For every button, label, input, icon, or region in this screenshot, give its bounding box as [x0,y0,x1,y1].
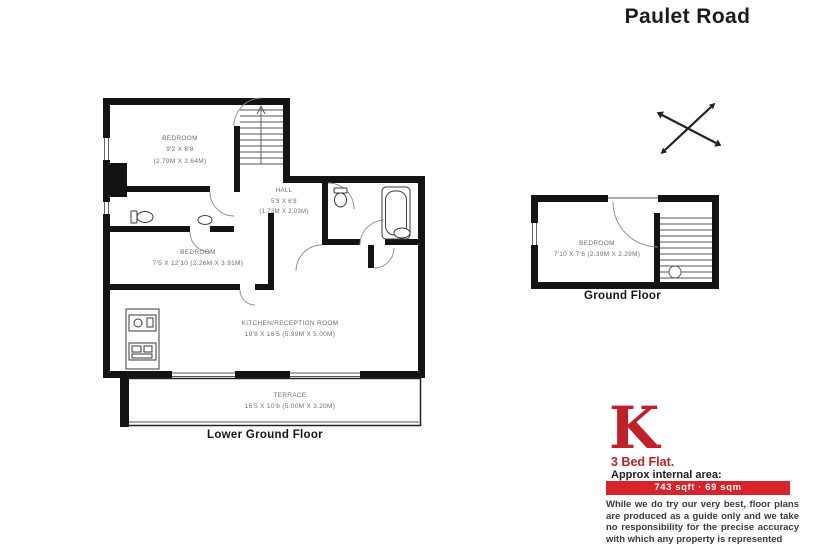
toilet-icon [334,188,347,207]
disclaimer-text: While we do try our very best, floor pla… [606,499,799,545]
sink-icon [198,216,212,225]
room-name: BEDROOM [543,238,651,249]
room-dims-ft: 9'2 x 8'8 [115,144,245,155]
room-label-gf-bedroom: BEDROOM 7'10 x 7'6 (2.39m x 2.29m) [543,238,651,261]
room-name: TERRACE [200,390,380,401]
toilet-icon [131,211,153,223]
property-type-label: 3 Bed Flat. [611,455,674,469]
room-label-kitchen: KITCHEN/RECEPTION ROOM 19'8 x 16'5 (5.99… [200,318,380,341]
room-dims-m: (1.73m x 2.03m) [238,207,330,218]
room-dims: 16'5 x 10'6 (5.00m x 3.20m) [200,401,380,412]
room-dims-ft: 5'8 x 6'8 [238,197,330,208]
room-name: BEDROOM [115,133,245,144]
room-dims: 7'10 x 7'6 (2.39m x 2.29m) [543,249,651,260]
sink-icon [394,228,410,238]
room-label-bedroom2: BEDROOM 7'5 x 12'10 (2.26m x 3.91m) [118,247,278,270]
floorplan-page: Paulet Road [0,0,820,547]
stairs-icon [240,106,283,164]
room-dims: 19'8 x 16'5 (5.99m x 5.00m) [200,329,380,340]
room-label-hall: HALL 5'8 x 6'8 (1.73m x 2.03m) [238,186,330,218]
lower-ground-floor-label: Lower Ground Floor [160,429,370,441]
stairs-wall [654,213,660,289]
stairs-icon [660,218,712,278]
page-title: Paulet Road [575,5,800,29]
kitchen-units-icon [126,309,159,369]
area-heading: Approx internal area: [611,469,722,481]
room-name: BEDROOM [118,247,278,258]
room-dims-m: (2.79m x 2.64m) [115,156,245,167]
room-name: HALL [238,186,330,197]
room-label-bedroom1: BEDROOM 9'2 x 8'8 (2.79m x 2.64m) [115,133,245,167]
ground-floor-label: Ground Floor [555,290,690,302]
room-label-terrace: TERRACE 16'5 x 10'6 (5.00m x 3.20m) [200,390,380,413]
room-name: KITCHEN/RECEPTION ROOM [200,318,380,329]
compass-icon [648,94,730,160]
brand-logo-k: K [609,399,659,457]
room-dims: 7'5 x 12'10 (2.26m x 3.91m) [118,258,278,269]
area-value-badge: 743 sqft · 69 sqm [606,481,790,495]
